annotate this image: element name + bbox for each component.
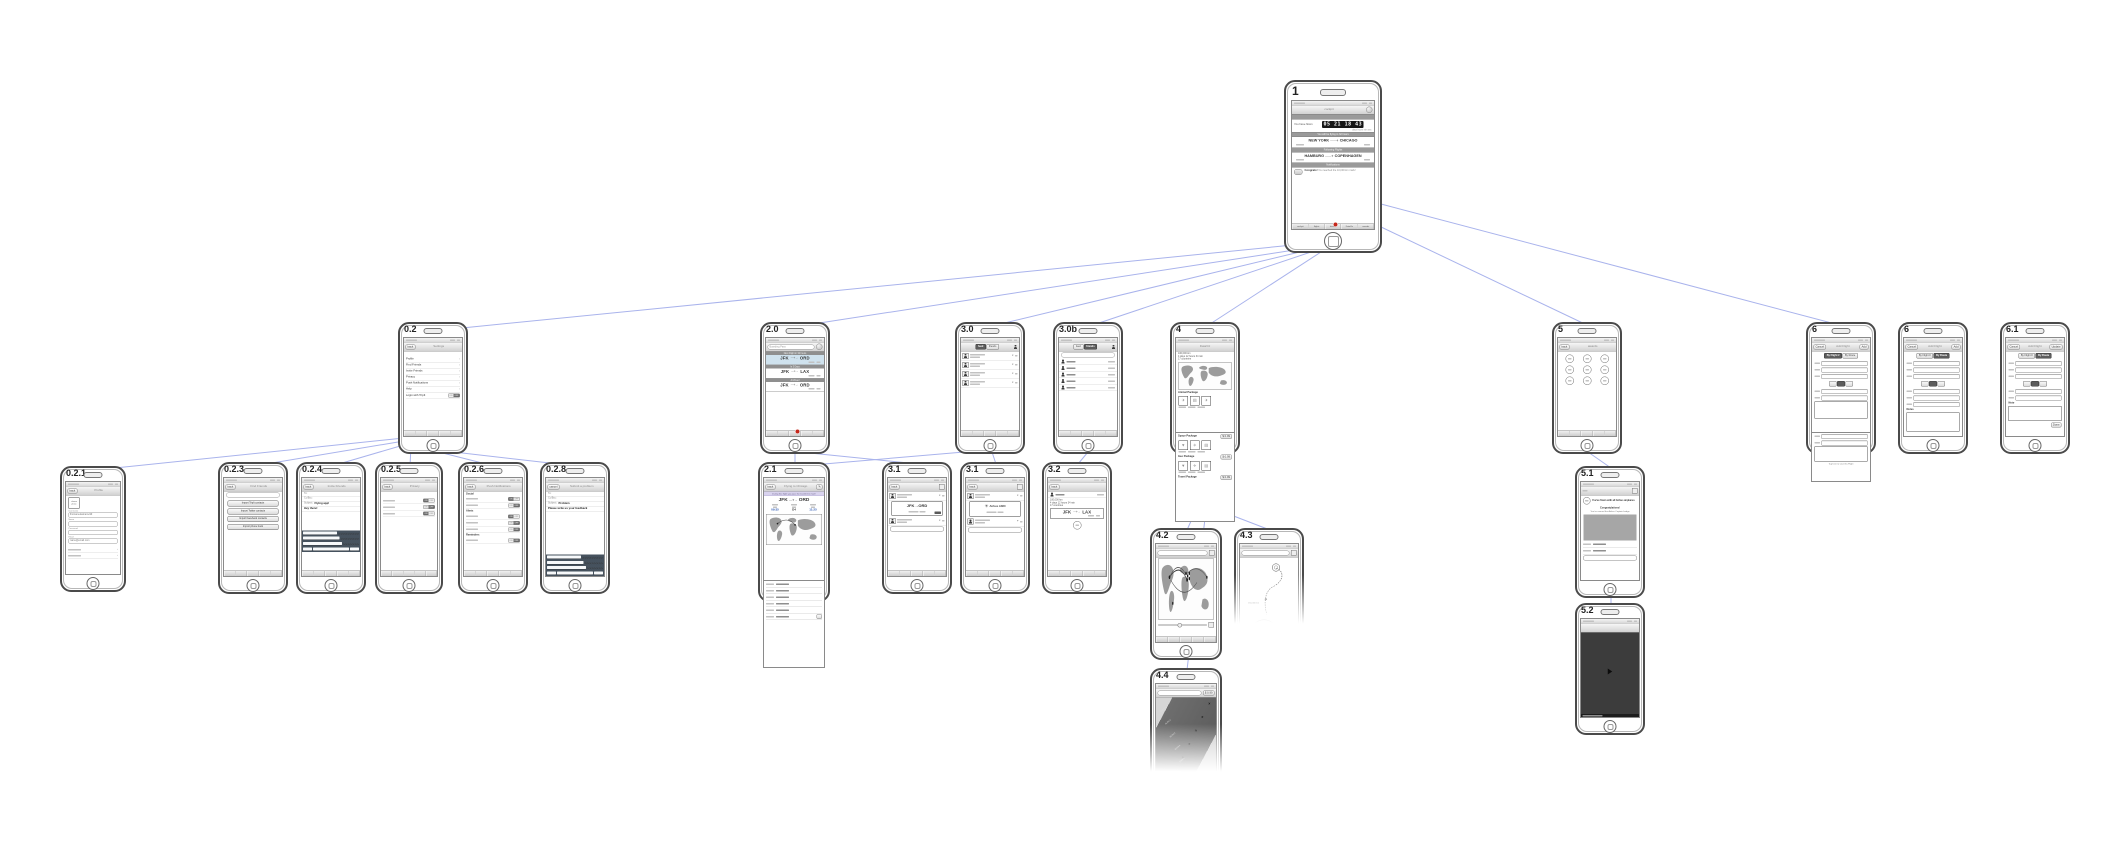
phone-screen: backFind FriendsImport TripIt contactsIm…	[223, 477, 283, 577]
tab-0	[302, 571, 314, 576]
tab-3	[923, 571, 935, 576]
like-icon: ♥	[939, 520, 940, 523]
segment-1: By Route	[1934, 353, 1950, 359]
phone-node-0.2[interactable]: 0.2 backSettingsProfile›Find Friends›Inv…	[398, 322, 468, 454]
layers-icon	[1209, 550, 1215, 556]
placeholder-line	[1097, 494, 1104, 496]
speaker-icon	[484, 468, 503, 474]
placeholder-line	[2009, 363, 2015, 365]
home-button-icon	[1927, 439, 1940, 452]
toggle-row-wrap: Login with TripItONOFF	[404, 393, 462, 400]
import-button: Import TripIt contacts	[228, 501, 279, 507]
placeholder-line	[1067, 374, 1076, 376]
phone-screen: back100,000 km4 days 12 hours 34 min17 c…	[1047, 477, 1107, 577]
placeholder-line	[897, 521, 907, 523]
tab-1	[314, 571, 326, 576]
phone-node-2.1[interactable]: 2.1 backFlying to Chicago✎During this fl…	[758, 462, 830, 602]
placeholder-line	[466, 498, 478, 500]
origin-code: JFK	[781, 369, 789, 374]
tab-2	[427, 431, 439, 436]
person-icon	[1061, 373, 1065, 377]
phone-node-5.2[interactable]: 5.2	[1575, 603, 1645, 735]
phone-node-0.2.4[interactable]: 0.2.4 backInvite FriendsTo:Cc/Bcc:Subjec…	[296, 462, 366, 594]
phone-screen: Boarding PassNext Flight in 32 hours JFK…	[765, 337, 825, 437]
destination-code: ORD	[800, 356, 810, 361]
phone-screen: CancelAdd FlightAddBy Flight #By Route N…	[1903, 337, 1963, 437]
plane-icon: —✈→	[791, 370, 798, 373]
placeholder-line	[1957, 339, 1960, 341]
tab-3	[439, 431, 451, 436]
placeholder-line	[1858, 339, 1863, 341]
calendar-icon	[1209, 622, 1215, 628]
placeholder-line	[812, 479, 817, 481]
thumbnail-row: ✈▤✈	[1176, 395, 1234, 407]
form-input	[2016, 367, 2062, 372]
nav-title: Find Friends	[237, 485, 281, 488]
placeholder-line	[599, 479, 602, 481]
placeholder-line	[942, 520, 945, 522]
search-input	[1061, 353, 1115, 358]
tab-2	[1082, 431, 1094, 436]
speaker-icon	[1320, 89, 1346, 96]
nav-bar: CancelAdd FlightAdd	[1812, 343, 1870, 352]
segment-0: feed	[1073, 344, 1083, 350]
phone-node-2.0[interactable]: 2.0 Boarding PassNext Flight in 32 hours…	[760, 322, 830, 454]
nav-bar	[1581, 624, 1639, 633]
import-button: Import phone book	[228, 524, 279, 530]
phone-screen: backPrivacyONOFFONOFFONOFF	[380, 477, 438, 577]
price-button: $ 0.99	[1220, 455, 1232, 460]
nav-bar: backPush Notifications	[464, 483, 522, 492]
phone-node-4.4[interactable]: 4.4 $ 0.99✈60,000 ft✈35,000 ft✈18,000 ft…	[1150, 668, 1222, 800]
placeholder-line	[277, 479, 280, 481]
placeholder-line	[1583, 715, 1603, 717]
placeholder-line	[766, 609, 774, 611]
tab-bar	[381, 571, 437, 577]
placeholder-line	[986, 511, 996, 513]
back-button: back	[466, 484, 476, 489]
home-button-icon	[569, 579, 582, 592]
form-input	[1822, 367, 1868, 372]
key	[594, 572, 603, 575]
tab-0	[1156, 637, 1168, 642]
tab-4	[1204, 637, 1216, 642]
form-input	[1822, 440, 1868, 445]
placeholder-line	[1179, 472, 1187, 474]
thumb-icon: ▤	[1193, 398, 1197, 403]
placeholder-line	[819, 339, 822, 341]
nav-title: Submit a problem	[561, 485, 603, 488]
key	[303, 531, 337, 534]
feed-item: ♥	[966, 517, 1024, 526]
feed-item: ♥	[961, 361, 1019, 370]
segment-1: By Route	[2036, 353, 2052, 359]
home-button-icon	[1581, 439, 1594, 452]
counter-digits: 05 21 18 43	[1322, 121, 1364, 128]
placeholder-line	[1178, 339, 1189, 341]
route-to: COPENHAGEN	[1335, 153, 1362, 158]
tab-0	[888, 571, 900, 576]
tab-3	[1192, 637, 1204, 642]
placeholder-line	[817, 375, 821, 377]
placeholder-line	[776, 609, 789, 611]
phone-node-6.1[interactable]: 6.1 CancelAdd FlightUpdateBy Flight #By …	[2000, 322, 2070, 454]
key	[350, 547, 359, 550]
thumb-icon: ✈	[1193, 443, 1196, 448]
on-off-toggle: ONOFF	[508, 527, 520, 531]
placeholder-line	[810, 504, 816, 506]
phone-node-0.2.3[interactable]: 0.2.3 backFind FriendsImport TripIt cont…	[218, 462, 288, 594]
tab-1	[900, 571, 912, 576]
form-input	[2016, 389, 2062, 394]
placeholder-line	[768, 339, 779, 341]
placeholder-line	[1294, 102, 1305, 104]
price-button: $ 0.99	[1203, 690, 1215, 695]
segment-2	[1937, 381, 1945, 387]
speaker-icon	[1578, 328, 1597, 334]
placeholder-line	[1088, 515, 1094, 517]
list-item-label: Find Friends	[406, 364, 421, 367]
tab-bar	[302, 571, 360, 577]
placeholder-line	[970, 372, 985, 374]
speaker-icon	[986, 468, 1005, 474]
tab-2	[403, 571, 414, 576]
package-thumbnail: ▼	[1179, 441, 1189, 451]
placeholder-line	[970, 354, 985, 356]
stats-line: 17 countries	[1178, 358, 1232, 361]
avatar-box	[968, 493, 974, 499]
package-header: Travel Package$ 0.99	[1176, 474, 1234, 481]
compose-label: Cc/Bcc:	[304, 497, 313, 500]
placeholder-line	[1907, 397, 1913, 399]
connector-line	[800, 249, 1301, 326]
placeholder-line	[766, 583, 774, 585]
phone-node-0.2.8[interactable]: 0.2.8 cancelSubmit a problemTo:Cc/Bcc:Su…	[540, 462, 610, 594]
screen-extension-panel	[763, 580, 825, 668]
flight-row: JFK —✈→ LAX	[1050, 508, 1104, 518]
compose-label: To:	[548, 492, 551, 495]
flight-row: JFK —✈→ LAX	[766, 368, 824, 378]
placeholder-line	[776, 590, 789, 592]
placeholder-line	[68, 555, 81, 557]
on-off-toggle: ONOFF	[508, 521, 520, 525]
time-value: D4	[792, 509, 796, 512]
placeholder-line	[890, 479, 901, 481]
placeholder-line	[1105, 339, 1110, 341]
scrubber-bar	[1581, 714, 1639, 717]
person-icon	[964, 363, 968, 367]
nav-left-button: back	[766, 484, 776, 489]
list-item-label: Privacy	[406, 376, 415, 379]
segmented-control: By Flight #By Route	[2006, 352, 2064, 361]
phone-node-6[interactable]: 6 CancelAdd FlightAddBy Flight #By Route…	[1898, 322, 1968, 454]
phone-screen: backInvite FriendsTo:Cc/Bcc:Subject:Flyi…	[301, 477, 361, 577]
package-thumbnail: ▤	[1190, 396, 1200, 406]
phone-screen: DataViz100,000 km4 days 12 hours 34 min1…	[1175, 337, 1235, 437]
phone-node-3.0b[interactable]: 3.0b feedfriends	[1053, 322, 1123, 454]
screen-id-label: 0.2.4	[302, 464, 322, 474]
placeholder-line	[1056, 494, 1065, 496]
screen-id-label: 4.4	[1156, 670, 1169, 680]
choose-photo-box: choose photo	[69, 498, 80, 509]
phone-node-5[interactable]: 5 backawards	[1552, 322, 1622, 454]
phone-node-4.2[interactable]: 4.2	[1150, 528, 1222, 660]
compose-row: Please write us your feedback	[546, 506, 604, 511]
tab-3	[337, 571, 349, 576]
connector-line	[1381, 204, 1843, 326]
placeholder-line	[920, 511, 926, 513]
speaker-icon	[424, 328, 443, 334]
form-input	[1914, 389, 1960, 394]
route-arrow-icon: ——✈	[1325, 155, 1334, 158]
placeholder-line	[1179, 451, 1187, 453]
compose-row: Hey there!	[302, 506, 360, 511]
tab-0	[966, 571, 978, 576]
nav-title: Profile	[79, 489, 119, 492]
back-button: back	[68, 488, 78, 493]
chevron-right-icon: ›	[459, 358, 460, 361]
notes-label: Note	[2006, 401, 2064, 405]
tab-bar	[766, 431, 824, 437]
phone-node-0.2.6[interactable]: 0.2.6 backPush NotificationsSocialONOFFO…	[458, 462, 528, 594]
person-icon	[1061, 379, 1065, 383]
fade-overlay	[1231, 575, 1307, 656]
package-thumbnail: ▤	[1202, 441, 1212, 451]
placeholder-line	[1211, 545, 1214, 547]
phone-screen: back♥☀Airbus A380 ♥	[965, 477, 1025, 577]
phone-node-4[interactable]: 4 DataViz100,000 km4 days 12 hours 34 mi…	[1170, 322, 1240, 454]
labeled-field: Emailname@email.com	[66, 535, 120, 544]
nav-title: Settings	[417, 345, 461, 348]
wireframe-flow-canvas: 1 cockpitYou have flown05 21 18 43days h…	[0, 0, 2108, 860]
on-off-toggle: ONOFF	[508, 497, 520, 501]
notification-badge	[795, 429, 800, 434]
award-badge	[1565, 366, 1574, 375]
phone-node-6[interactable]: 6 CancelAdd FlightAddBy Flight #By Route…	[1806, 322, 1876, 454]
home-button-icon	[1604, 583, 1617, 596]
screen-id-label: 6.1	[2006, 324, 2019, 334]
tab-4	[348, 571, 360, 576]
flight-times: 09:35D411:25	[764, 504, 824, 513]
person-icon	[891, 494, 895, 498]
person-icon	[1014, 345, 1018, 349]
feed-item: ♥	[961, 370, 1019, 379]
speaker-icon	[566, 468, 585, 474]
home-button-icon	[789, 439, 802, 452]
screen-id-label: 3.0	[961, 324, 974, 334]
segmented-control	[1904, 380, 1962, 389]
phone-node-3.1[interactable]: 3.1 back♥☀Airbus A380 ♥	[960, 462, 1030, 594]
like-icon: ♥	[1012, 363, 1013, 366]
back-button: back	[1560, 344, 1570, 349]
plane-icon: —✈→	[789, 499, 798, 502]
phone-screen: You've flown with all Airbus airplanesCo…	[1580, 481, 1640, 581]
notification-row: Congrats! You reached the 10,000 km mark…	[1292, 168, 1374, 177]
phone-node-0.2.5[interactable]: 0.2.5 backPrivacyONOFFONOFFONOFF	[375, 462, 443, 594]
nav-title: cockpit	[1294, 108, 1365, 111]
import-button: Import Twitter contacts	[228, 508, 279, 514]
phone-node-3.0[interactable]: 3.0 feedfriends♥♥♥♥	[955, 322, 1025, 454]
destination-code: ORD	[799, 497, 810, 503]
speaker-icon	[2026, 328, 2045, 334]
phone-screen: feedfriends♥♥♥♥	[960, 337, 1020, 437]
screen-id-label: 1	[1292, 84, 1299, 98]
like-icon: ♥	[1017, 494, 1018, 497]
placeholder-line	[1286, 545, 1291, 547]
tab-0	[961, 431, 973, 436]
screen-id-label: 3.1	[888, 464, 901, 474]
placeholder-line	[1188, 451, 1196, 453]
home-button-icon	[403, 579, 416, 592]
tab-3	[259, 571, 271, 576]
award-badge	[1600, 355, 1609, 364]
placeholder-line	[1603, 380, 1607, 382]
placeholder-line	[1067, 367, 1076, 369]
segment-1	[1929, 381, 1937, 387]
phone-screen: CancelAdd FlightUpdateBy Flight #By Rout…	[2005, 337, 2065, 437]
flight-row: JFK —✈→ ORD	[766, 382, 824, 392]
back-button: back	[226, 484, 236, 489]
placeholder-line	[1108, 380, 1115, 382]
placeholder-line	[348, 479, 353, 481]
placeholder-line	[897, 496, 907, 498]
tab-2	[247, 571, 259, 576]
field-value: firstnamelastname99	[69, 513, 118, 518]
time-value: 11:25	[809, 509, 817, 512]
phone-screen: backawards	[1557, 337, 1617, 437]
home-button-icon	[1324, 232, 1342, 250]
screen-id-label: 5.1	[1581, 468, 1594, 478]
tab-3	[499, 571, 511, 576]
share-icon	[939, 484, 945, 490]
phone-node-0.2.1[interactable]: 0.2.1 backProfilechoose photoUsernamefir…	[60, 466, 126, 592]
person-row	[1059, 385, 1117, 392]
import-buttons: Import TripIt contactsImport Twitter con…	[224, 499, 282, 532]
placeholder-line	[1369, 102, 1372, 104]
phone-screen: backSettingsProfile›Find Friends›Invite …	[403, 337, 463, 437]
nav-bar: backProfile	[66, 487, 120, 496]
package-thumbnail: ✈	[1202, 396, 1212, 406]
placeholder-line	[1015, 355, 1018, 357]
award-badge	[1583, 366, 1592, 375]
speaker-icon	[908, 468, 927, 474]
tab-bar	[1558, 431, 1616, 437]
screen-id-label: 0.2.5	[381, 464, 401, 474]
placeholder-line	[1907, 391, 1913, 393]
origin-code: JFK	[780, 383, 788, 388]
slider-knob	[1178, 623, 1183, 628]
tab-bar: cockpitflightsfriendsDataVizawards	[1292, 224, 1374, 230]
slider-track	[1158, 624, 1207, 625]
placeholder-line	[1611, 339, 1614, 341]
phone-node-3.2[interactable]: 3.2 back100,000 km4 days 12 hours 34 min…	[1042, 462, 1112, 594]
nav-title: awards	[1571, 345, 1615, 348]
like-icon: ♥	[1012, 372, 1013, 375]
phone-node-3.1[interactable]: 3.1 back♥JFK→ORD ♥	[882, 462, 952, 594]
tab-bar	[961, 431, 1019, 437]
tab-bar	[888, 571, 946, 577]
placeholder-line	[766, 616, 774, 618]
placeholder-line	[2009, 397, 2015, 399]
placeholder-line	[1634, 483, 1637, 485]
nav-title: Add Flight	[1828, 345, 1859, 348]
thumb-icon: ▤	[1204, 443, 1208, 448]
home-button-icon	[1604, 720, 1617, 733]
placeholder-line	[970, 363, 985, 365]
avatar-box	[963, 371, 969, 377]
comment-input	[890, 527, 944, 532]
tab-0: cockpit	[1292, 224, 1308, 229]
share-icon	[1632, 488, 1638, 494]
tab-0	[404, 431, 416, 436]
placeholder-line	[776, 596, 789, 598]
screen-extension-panel: Space Package$ 0.99▼✈▤Geo Package$ 0.99▼…	[1175, 432, 1235, 522]
home-button-icon	[247, 579, 260, 592]
nav-bar: backInvite Friends	[302, 483, 360, 492]
tab-2	[989, 571, 1001, 576]
badge-circles	[1048, 519, 1106, 532]
notif-note: You reached the 10,000 km mark!	[1318, 169, 1355, 172]
placeholder-line	[1020, 521, 1023, 523]
play-icon	[1608, 668, 1613, 674]
placeholder-line	[1585, 358, 1589, 360]
plane-icon: ✈	[1207, 702, 1212, 707]
timeline-slider	[1156, 621, 1216, 630]
stats-block: 100,000 km4 days 12 hours 34 min17 count…	[1048, 498, 1106, 508]
placeholder-line	[466, 505, 478, 507]
placeholder-line	[1568, 358, 1572, 360]
home-button-icon	[2029, 439, 2042, 452]
person-icon	[1112, 345, 1116, 349]
phone-node-4.3[interactable]: 4.3 ✈150,000 kmearth	[1234, 528, 1304, 653]
segment-1	[1837, 381, 1845, 387]
tab-4	[1105, 431, 1117, 436]
person-icon	[1061, 360, 1065, 364]
plane-icon: —✈→	[791, 357, 798, 360]
tab-3	[996, 431, 1008, 436]
labeled-field: Name	[66, 518, 120, 527]
like-icon: ♥	[1017, 520, 1018, 523]
placeholder-line	[355, 479, 358, 481]
field-value	[69, 521, 118, 526]
package-thumbnail: ▼	[1179, 461, 1189, 471]
placeholder-line	[1015, 364, 1018, 366]
compose-label: Cc/Bcc:	[548, 497, 557, 500]
nav-left-button: Cancel	[1814, 344, 1827, 349]
tab-1: flights	[1308, 224, 1324, 229]
segment-1: friends	[986, 344, 999, 350]
placeholder-line	[970, 383, 980, 385]
phone-node-5.1[interactable]: 5.1 You've flown with all Airbus airplan…	[1575, 466, 1645, 598]
placeholder-line	[1907, 376, 1913, 378]
flight-subtext	[1052, 515, 1102, 517]
feed-item: ♥	[961, 379, 1019, 388]
segment-2	[1845, 381, 1853, 387]
nav-bar: backawards	[1558, 343, 1616, 352]
speaker-icon	[1260, 534, 1279, 540]
tab-3	[1094, 431, 1106, 436]
form-input	[1914, 402, 1960, 407]
labeled-field: Password	[66, 527, 120, 536]
counter-label: You have flown	[1294, 123, 1321, 126]
list-item-label: Invite Friends	[406, 370, 423, 373]
toggle-knob	[1294, 169, 1303, 175]
phone-node-1[interactable]: 1 cockpitYou have flown05 21 18 43days h…	[1284, 80, 1382, 253]
placeholder-line	[226, 479, 237, 481]
tab-1	[1071, 431, 1083, 436]
nav-bar: cancelSubmit a problem	[546, 483, 604, 492]
tab-2	[984, 431, 996, 436]
